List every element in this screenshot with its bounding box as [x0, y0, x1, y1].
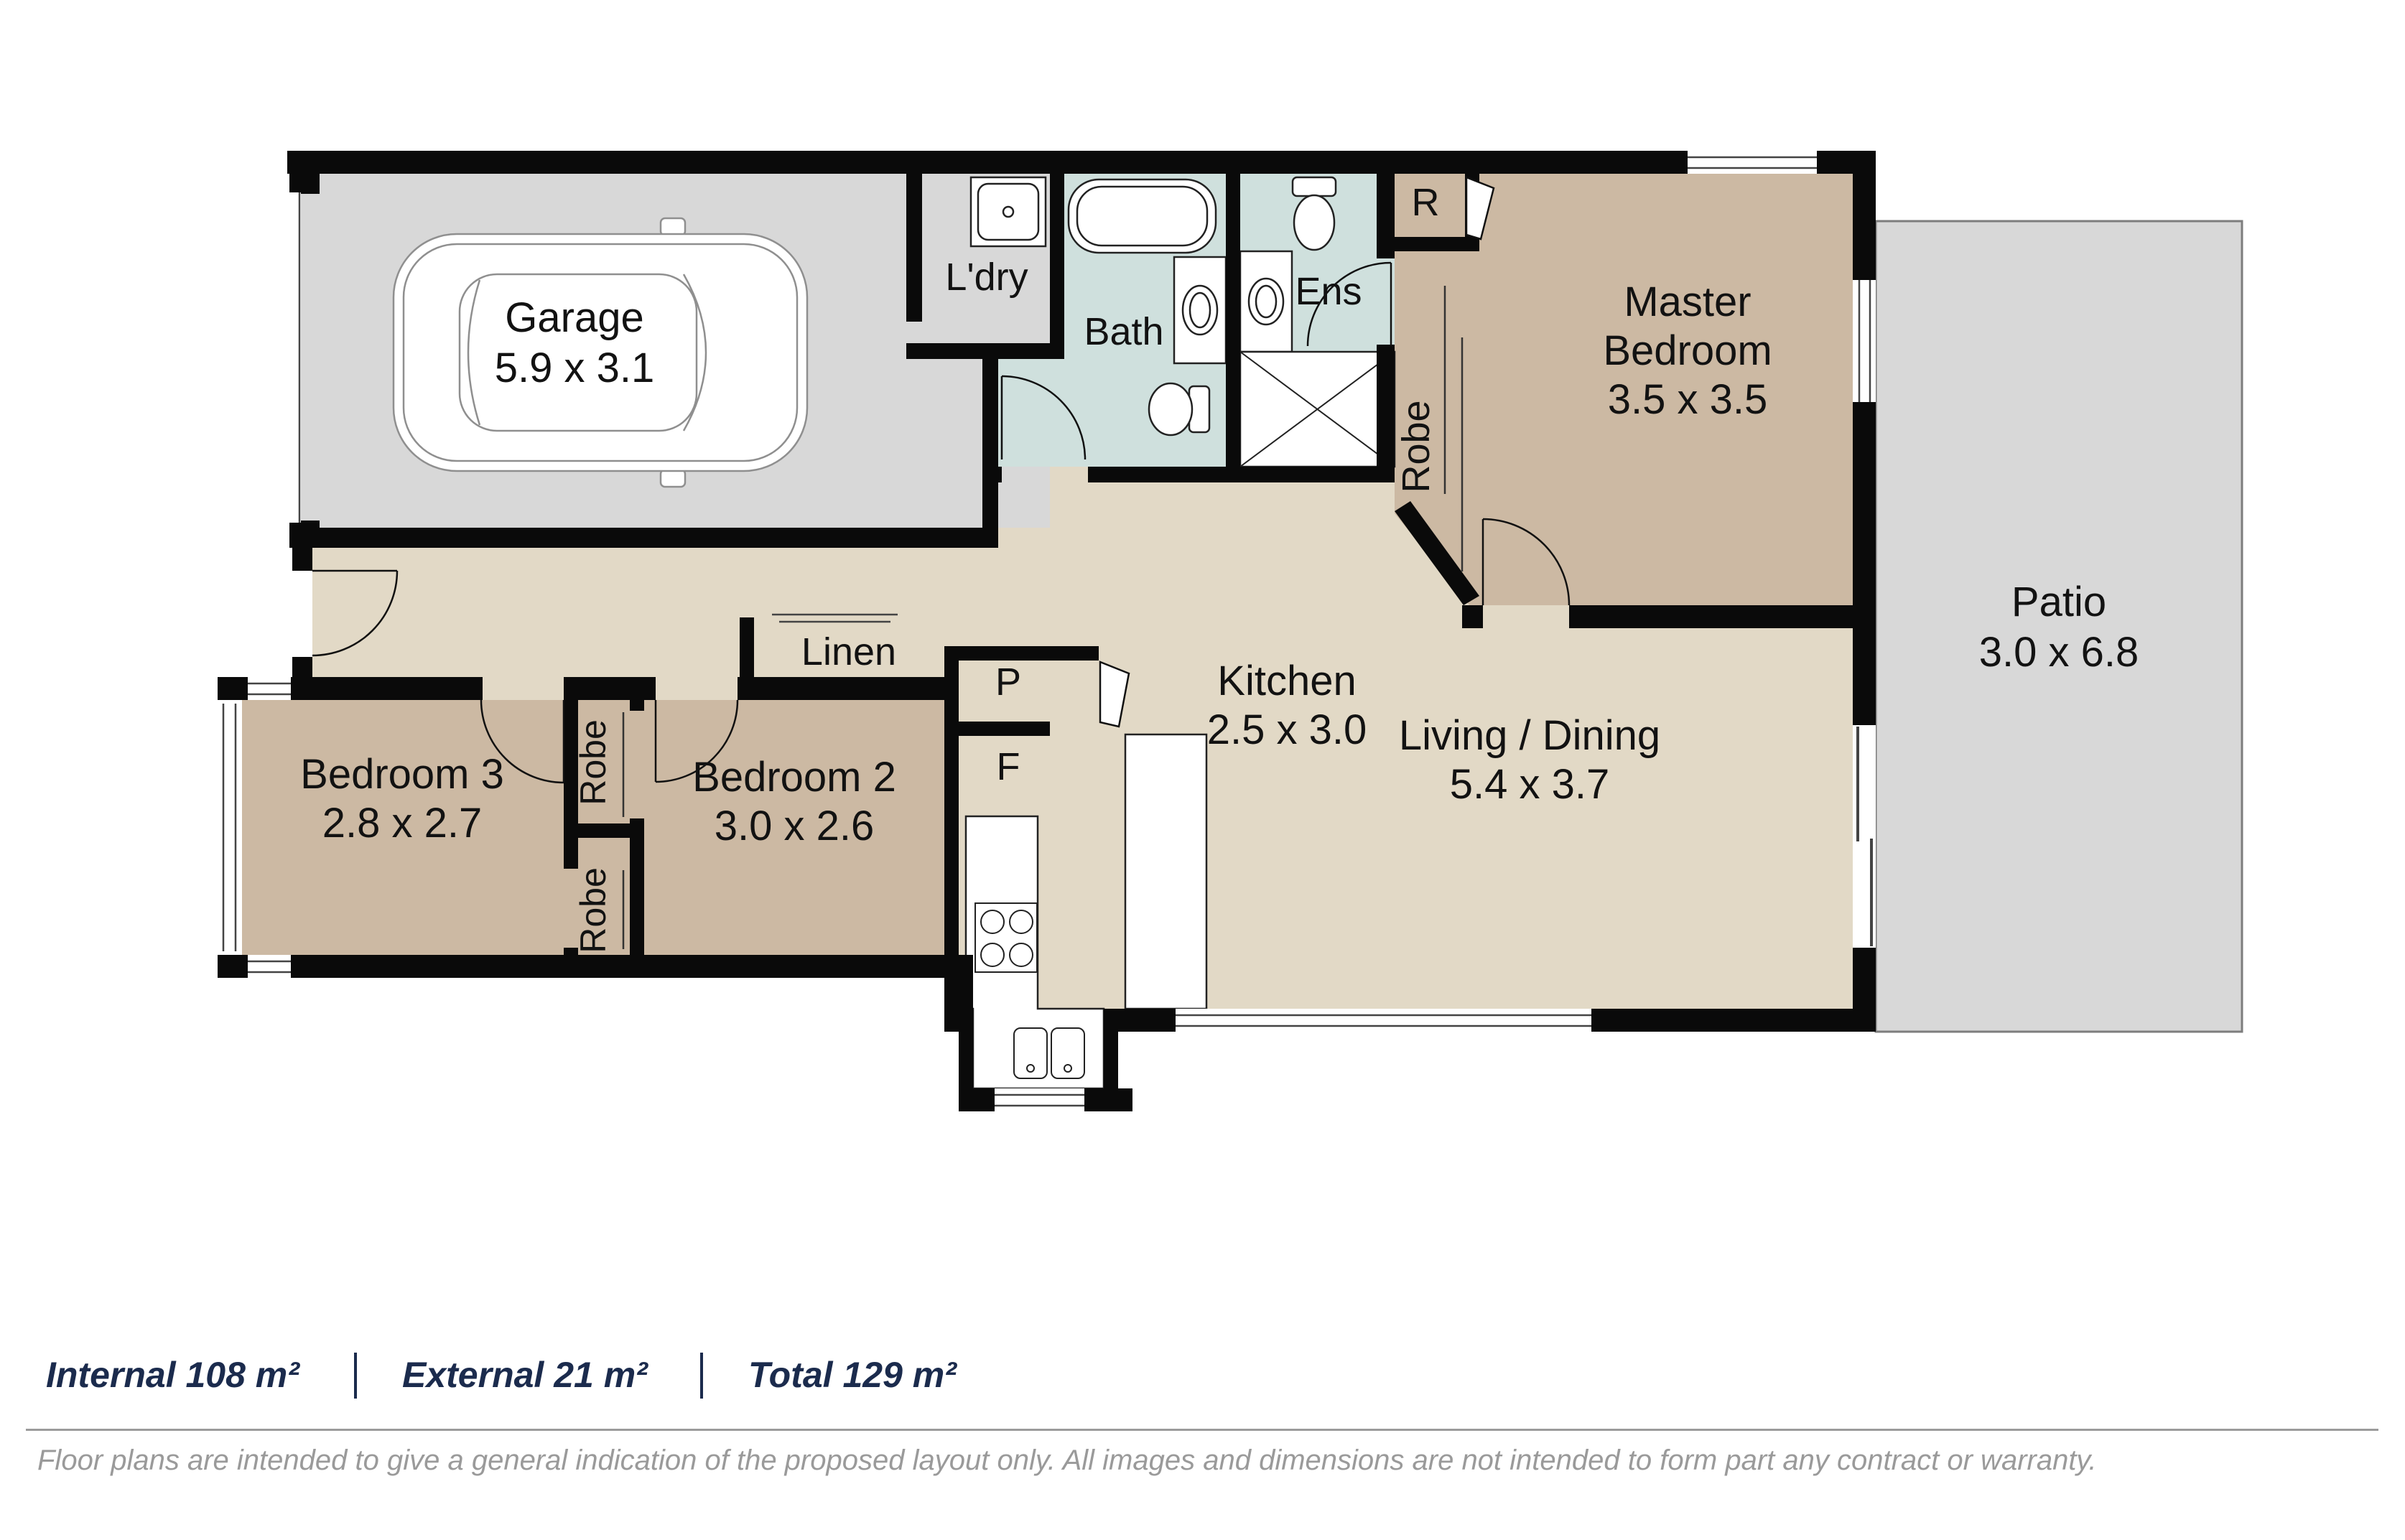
room-dims-living: 5.4 x 3.7 [1450, 761, 1609, 808]
stat-separator-1 [354, 1353, 357, 1399]
bath-vanity-icon [1174, 257, 1226, 363]
room-label-laundry: L'dry [945, 256, 1028, 299]
room-label-kitchen: Kitchen [1217, 658, 1356, 704]
window-bedroom3-left [218, 704, 242, 951]
room-label-linen: Linen [801, 630, 896, 673]
room-label-robe-lower: Robe [573, 867, 613, 953]
room-dims-patio: 3.0 x 6.8 [1979, 629, 2139, 676]
room-label-bedroom3: Bedroom 3 [300, 751, 504, 798]
shower-icon [1240, 352, 1395, 467]
room-dims-bedroom3: 2.8 x 2.7 [322, 800, 482, 846]
label-pantry: P [995, 661, 1021, 704]
room-label-bedroom2: Bedroom 2 [692, 754, 896, 801]
room-label-ens: Ens [1295, 270, 1362, 313]
room-label-garage: Garage [505, 294, 643, 341]
floor-patio [1876, 221, 2242, 1032]
room-label-robe-r: R [1412, 181, 1440, 224]
label-fridge: F [997, 745, 1020, 788]
room-dims-bedroom2: 3.0 x 2.6 [715, 803, 874, 849]
room-label-master-1: Master [1624, 279, 1751, 325]
disclaimer-text: Floor plans are intended to give a gener… [37, 1445, 2097, 1477]
window-kitchen-bench [995, 1088, 1084, 1111]
laundry-sink-icon [971, 177, 1046, 246]
window-master-right [1853, 280, 1876, 402]
sliding-door-patio [1853, 725, 1876, 948]
room-label-patio: Patio [2011, 579, 2106, 625]
ens-toilet-icon [1293, 177, 1336, 250]
window-bedroom3-top [248, 677, 291, 700]
room-label-master-2: Bedroom [1603, 327, 1772, 374]
room-label-robe-upper: Robe [573, 719, 613, 806]
room-label-robe-master: Robe [1395, 400, 1438, 493]
ens-vanity-icon [1240, 251, 1292, 352]
stat-internal-area: Internal 108 m² [46, 1354, 299, 1396]
room-label-bath: Bath [1084, 310, 1163, 353]
stat-external-area: External 21 m² [402, 1354, 648, 1396]
kitchen-island [1125, 734, 1206, 1009]
stat-separator-2 [700, 1353, 703, 1399]
bath-toilet-icon [1149, 383, 1209, 435]
window-living-bottom [1176, 1009, 1591, 1032]
floor-plan-svg: Garage 5.9 x 3.1 L'dry Bath Ens R Robe M… [0, 0, 2405, 1540]
cooktop-icon [975, 903, 1037, 972]
bathtub-icon [1069, 179, 1216, 253]
window-bedroom3-bottom [248, 955, 291, 978]
room-dims-kitchen: 2.5 x 3.0 [1207, 706, 1367, 753]
footer-divider [26, 1429, 2378, 1431]
floor-bath-entry [998, 345, 1064, 467]
room-dims-master: 3.5 x 3.5 [1608, 376, 1767, 423]
stat-total-area: Total 129 m² [748, 1354, 957, 1396]
garage-door [289, 192, 301, 523]
window-master-top [1688, 151, 1817, 174]
room-dims-garage: 5.9 x 3.1 [495, 345, 654, 391]
room-label-living: Living / Dining [1399, 712, 1660, 759]
floorplan-page: Garage 5.9 x 3.1 L'dry Bath Ens R Robe M… [0, 0, 2405, 1540]
